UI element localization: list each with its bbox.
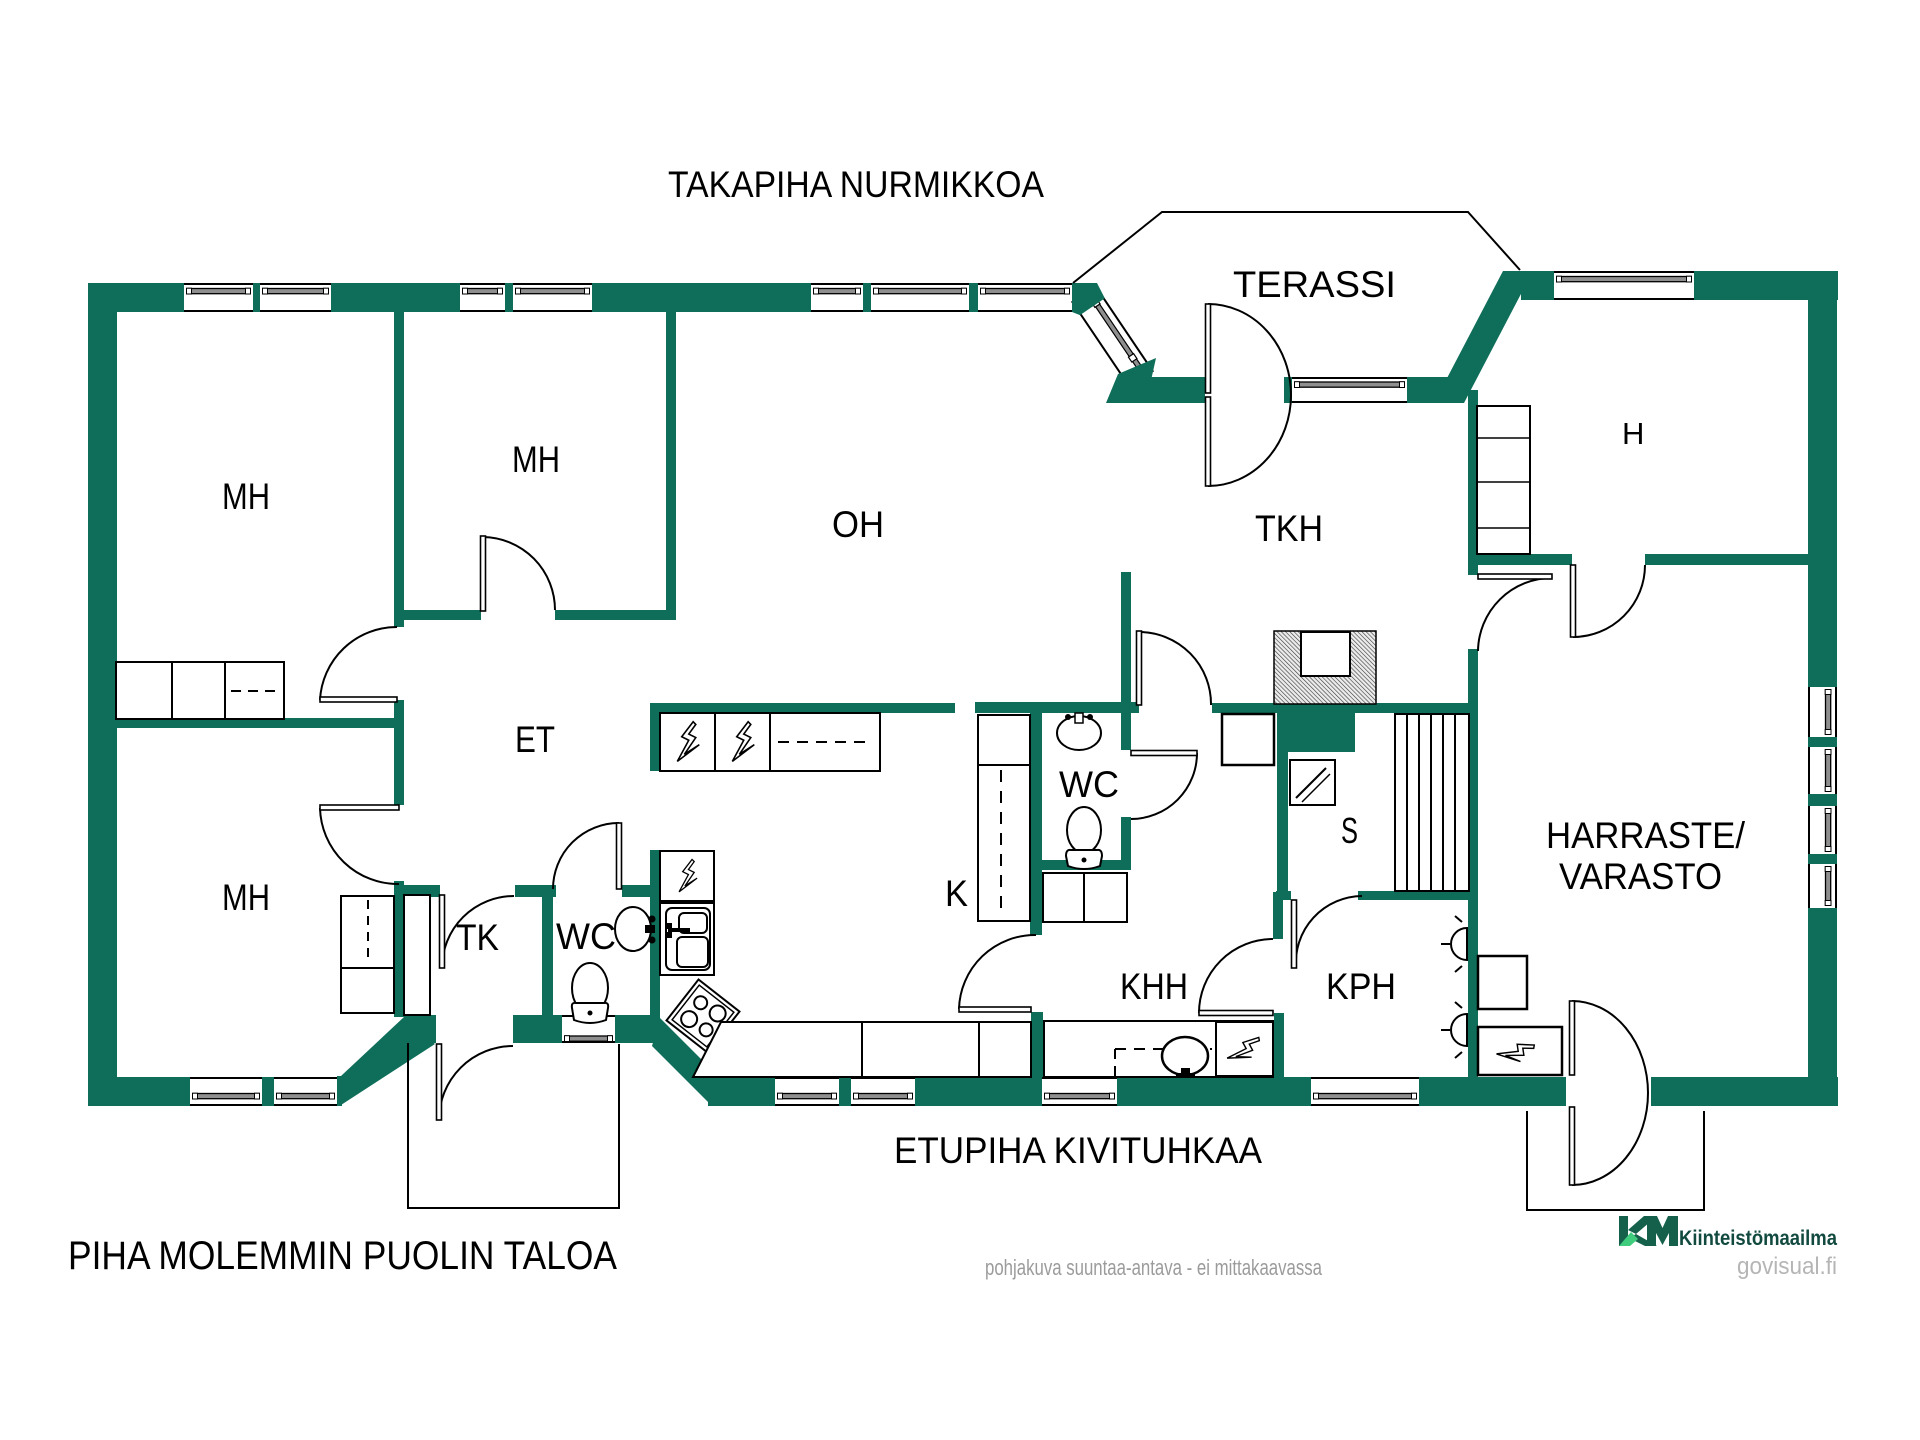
svg-text:VARASTO: VARASTO	[1559, 856, 1722, 897]
svg-text:WC: WC	[1059, 764, 1119, 805]
svg-text:ETUPIHA KIVITUHKAA: ETUPIHA KIVITUHKAA	[894, 1130, 1262, 1171]
svg-text:K: K	[945, 873, 968, 914]
svg-text:PIHA MOLEMMIN PUOLIN TALOA: PIHA MOLEMMIN PUOLIN TALOA	[68, 1234, 617, 1278]
svg-text:HARRASTE/: HARRASTE/	[1546, 815, 1746, 856]
svg-text:ET: ET	[515, 719, 555, 760]
svg-text:KPH: KPH	[1326, 966, 1396, 1007]
svg-text:TK: TK	[456, 917, 499, 958]
svg-text:S: S	[1341, 810, 1358, 851]
svg-text:KHH: KHH	[1120, 966, 1188, 1007]
svg-text:MH: MH	[222, 877, 270, 918]
svg-text:MH: MH	[512, 439, 560, 480]
svg-text:Kiinteistömaailma: Kiinteistömaailma	[1679, 1227, 1837, 1250]
svg-text:MH: MH	[222, 476, 270, 517]
svg-text:OH: OH	[832, 504, 884, 545]
svg-text:govisual.fi: govisual.fi	[1737, 1253, 1837, 1280]
svg-text:TERASSI: TERASSI	[1233, 264, 1396, 305]
svg-text:TKH: TKH	[1255, 508, 1323, 549]
svg-text:WC: WC	[556, 916, 616, 957]
svg-text:pohjakuva suuntaa-antava - ei: pohjakuva suuntaa-antava - ei mittakaava…	[985, 1255, 1323, 1280]
svg-text:TAKAPIHA NURMIKKOA: TAKAPIHA NURMIKKOA	[668, 164, 1044, 205]
svg-text:H: H	[1622, 416, 1644, 451]
